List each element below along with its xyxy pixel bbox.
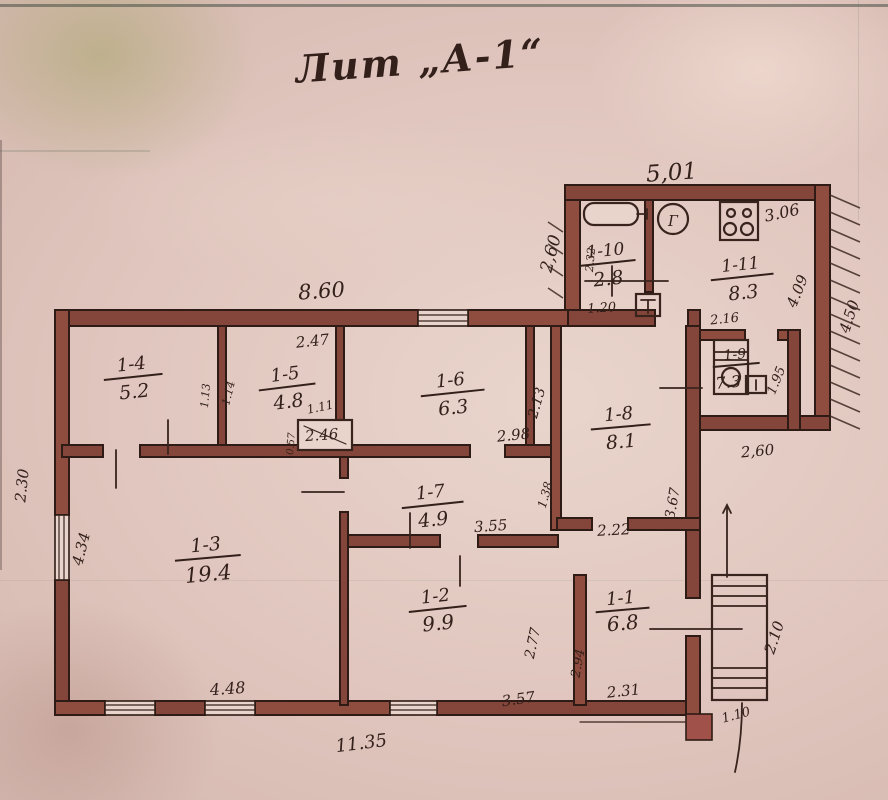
porch-steps bbox=[712, 575, 767, 700]
wall-segment bbox=[155, 701, 205, 715]
room-number: 1-1 bbox=[605, 587, 636, 610]
walls bbox=[55, 185, 830, 715]
dim-annex-left-height: 2,60 bbox=[536, 233, 565, 276]
room-area: 6.3 bbox=[437, 395, 469, 420]
room-number: 1-5 bbox=[269, 362, 300, 386]
dim-boiler-room-height: 1.95 bbox=[764, 364, 789, 396]
dim-partition-a: 1.13 bbox=[198, 383, 213, 409]
dim-porch-height: 2.10 bbox=[760, 618, 788, 657]
window bbox=[418, 310, 468, 326]
dim-room5-top-width: 2.47 bbox=[294, 330, 331, 352]
chimney-flue bbox=[686, 714, 712, 740]
dim-left-window-height: 4.34 bbox=[68, 530, 94, 568]
wall-segment bbox=[565, 185, 830, 200]
room-area: 2.8 bbox=[591, 266, 624, 291]
wall-segment bbox=[348, 535, 440, 547]
window bbox=[55, 515, 69, 580]
room-area: 6.8 bbox=[606, 610, 640, 637]
room-number: 1-11 bbox=[720, 253, 760, 277]
wall-segment bbox=[255, 701, 390, 715]
window bbox=[105, 701, 155, 715]
room-label-1-4: 1-4 5.2 bbox=[101, 351, 165, 406]
wall-segment bbox=[478, 535, 558, 547]
room-area: 5.2 bbox=[118, 379, 150, 404]
dim-room6-bottom-width: 2.98 bbox=[495, 424, 531, 445]
dim-left-upper-height: 2.30 bbox=[11, 467, 33, 504]
wall-segment bbox=[565, 185, 580, 310]
dim-kitchen-door-width: 2.16 bbox=[708, 311, 739, 329]
wall-segment bbox=[688, 310, 700, 326]
wall-segment bbox=[340, 457, 348, 478]
dim-bath-inner-width: 1.20 bbox=[587, 300, 617, 317]
wall-segment bbox=[557, 518, 592, 530]
dim-room2-right-height: 2.77 bbox=[522, 626, 544, 661]
room-label-1-3: 1-3 19.4 bbox=[173, 531, 243, 589]
room-number: 1-6 bbox=[435, 369, 466, 393]
room-area: 8.1 bbox=[605, 430, 637, 455]
title-group: Лит „А-1“ bbox=[292, 29, 546, 91]
room-label-1-11: 1-11 8.3 bbox=[709, 252, 777, 307]
wall-segment bbox=[551, 326, 561, 530]
wall-segment bbox=[437, 701, 700, 715]
dim-stove-width: 1.11 bbox=[306, 397, 335, 416]
wall-segment bbox=[700, 330, 745, 340]
wall-segment bbox=[788, 330, 800, 430]
wall-segment bbox=[505, 445, 551, 457]
dim-veranda-height: 4.50 bbox=[835, 297, 863, 336]
wall-segment bbox=[55, 310, 69, 515]
room-number: 1-3 bbox=[189, 533, 221, 558]
wall-segment bbox=[686, 326, 700, 598]
room-area: 4.9 bbox=[416, 507, 449, 532]
room-number: 1-8 bbox=[603, 403, 634, 426]
room-label-1-2: 1-2 9.9 bbox=[406, 583, 469, 638]
dim-porch-width: 1.10 bbox=[720, 705, 752, 727]
room-area: 8.3 bbox=[727, 280, 759, 305]
wall-segment bbox=[700, 416, 830, 430]
dim-room8-right-height: 3.67 bbox=[662, 486, 683, 520]
wall-segment bbox=[574, 575, 586, 705]
blueprint-page: Лит „А-1“ bbox=[0, 0, 888, 800]
dim-room1-bottom-width: 2.31 bbox=[605, 680, 641, 701]
room-label-1-6: 1-6 6.3 bbox=[418, 367, 487, 422]
dim-boiler-porch-width: 2,60 bbox=[739, 441, 775, 462]
room-label-1-1: 1-1 6.8 bbox=[594, 586, 652, 638]
floor-plan-drawing: Лит „А-1“ bbox=[0, 0, 888, 800]
plan-title: Лит „А-1“ bbox=[292, 29, 546, 91]
dim-annex-right-inner-height: 4.09 bbox=[782, 272, 812, 311]
dim-bath-inner-height: 2.32 bbox=[583, 247, 598, 274]
wall-segment bbox=[468, 310, 568, 326]
dim-hall-width: 2.22 bbox=[596, 520, 631, 540]
wall-segment bbox=[686, 636, 700, 715]
room-number: 1-7 bbox=[415, 481, 447, 505]
room-number: 1-2 bbox=[420, 585, 451, 609]
dim-room7-bottom-width: 3.55 bbox=[473, 516, 508, 536]
room-area: 7.3 bbox=[715, 372, 742, 393]
room-number: 1-9 bbox=[723, 346, 747, 364]
room-area: 4.8 bbox=[271, 389, 305, 415]
dim-main-top-width: 8.60 bbox=[297, 277, 345, 304]
dim-annex-top-width: 5,01 bbox=[645, 158, 698, 188]
room-label-1-8: 1-8 8.1 bbox=[589, 401, 653, 455]
wall-segment bbox=[55, 701, 105, 715]
room-number: 1-4 bbox=[116, 353, 147, 377]
room-area: 9.9 bbox=[421, 609, 455, 636]
wall-segment bbox=[815, 185, 830, 430]
wall-segment bbox=[628, 518, 700, 530]
wall-segment bbox=[55, 310, 418, 326]
wall-segment bbox=[62, 445, 103, 457]
dim-room4-bottom-width: 2.46 bbox=[303, 425, 339, 445]
wall-segment bbox=[55, 580, 69, 715]
window bbox=[390, 701, 437, 715]
dim-main-bottom-width: 11.35 bbox=[334, 730, 388, 757]
bathtub-icon bbox=[584, 203, 647, 225]
window bbox=[205, 701, 255, 715]
gas-meter-letter: Г bbox=[667, 212, 679, 230]
room-area: 19.4 bbox=[184, 560, 233, 588]
dim-stove-height: 0.57 bbox=[285, 432, 298, 456]
gas-stove-icon bbox=[720, 202, 758, 240]
gas-meter-icon: Г bbox=[658, 204, 688, 234]
wall-segment bbox=[340, 512, 348, 705]
dim-room3-bottom-width: 4.48 bbox=[208, 678, 246, 700]
dim-annex-kitchen-width: 3.06 bbox=[762, 200, 801, 226]
